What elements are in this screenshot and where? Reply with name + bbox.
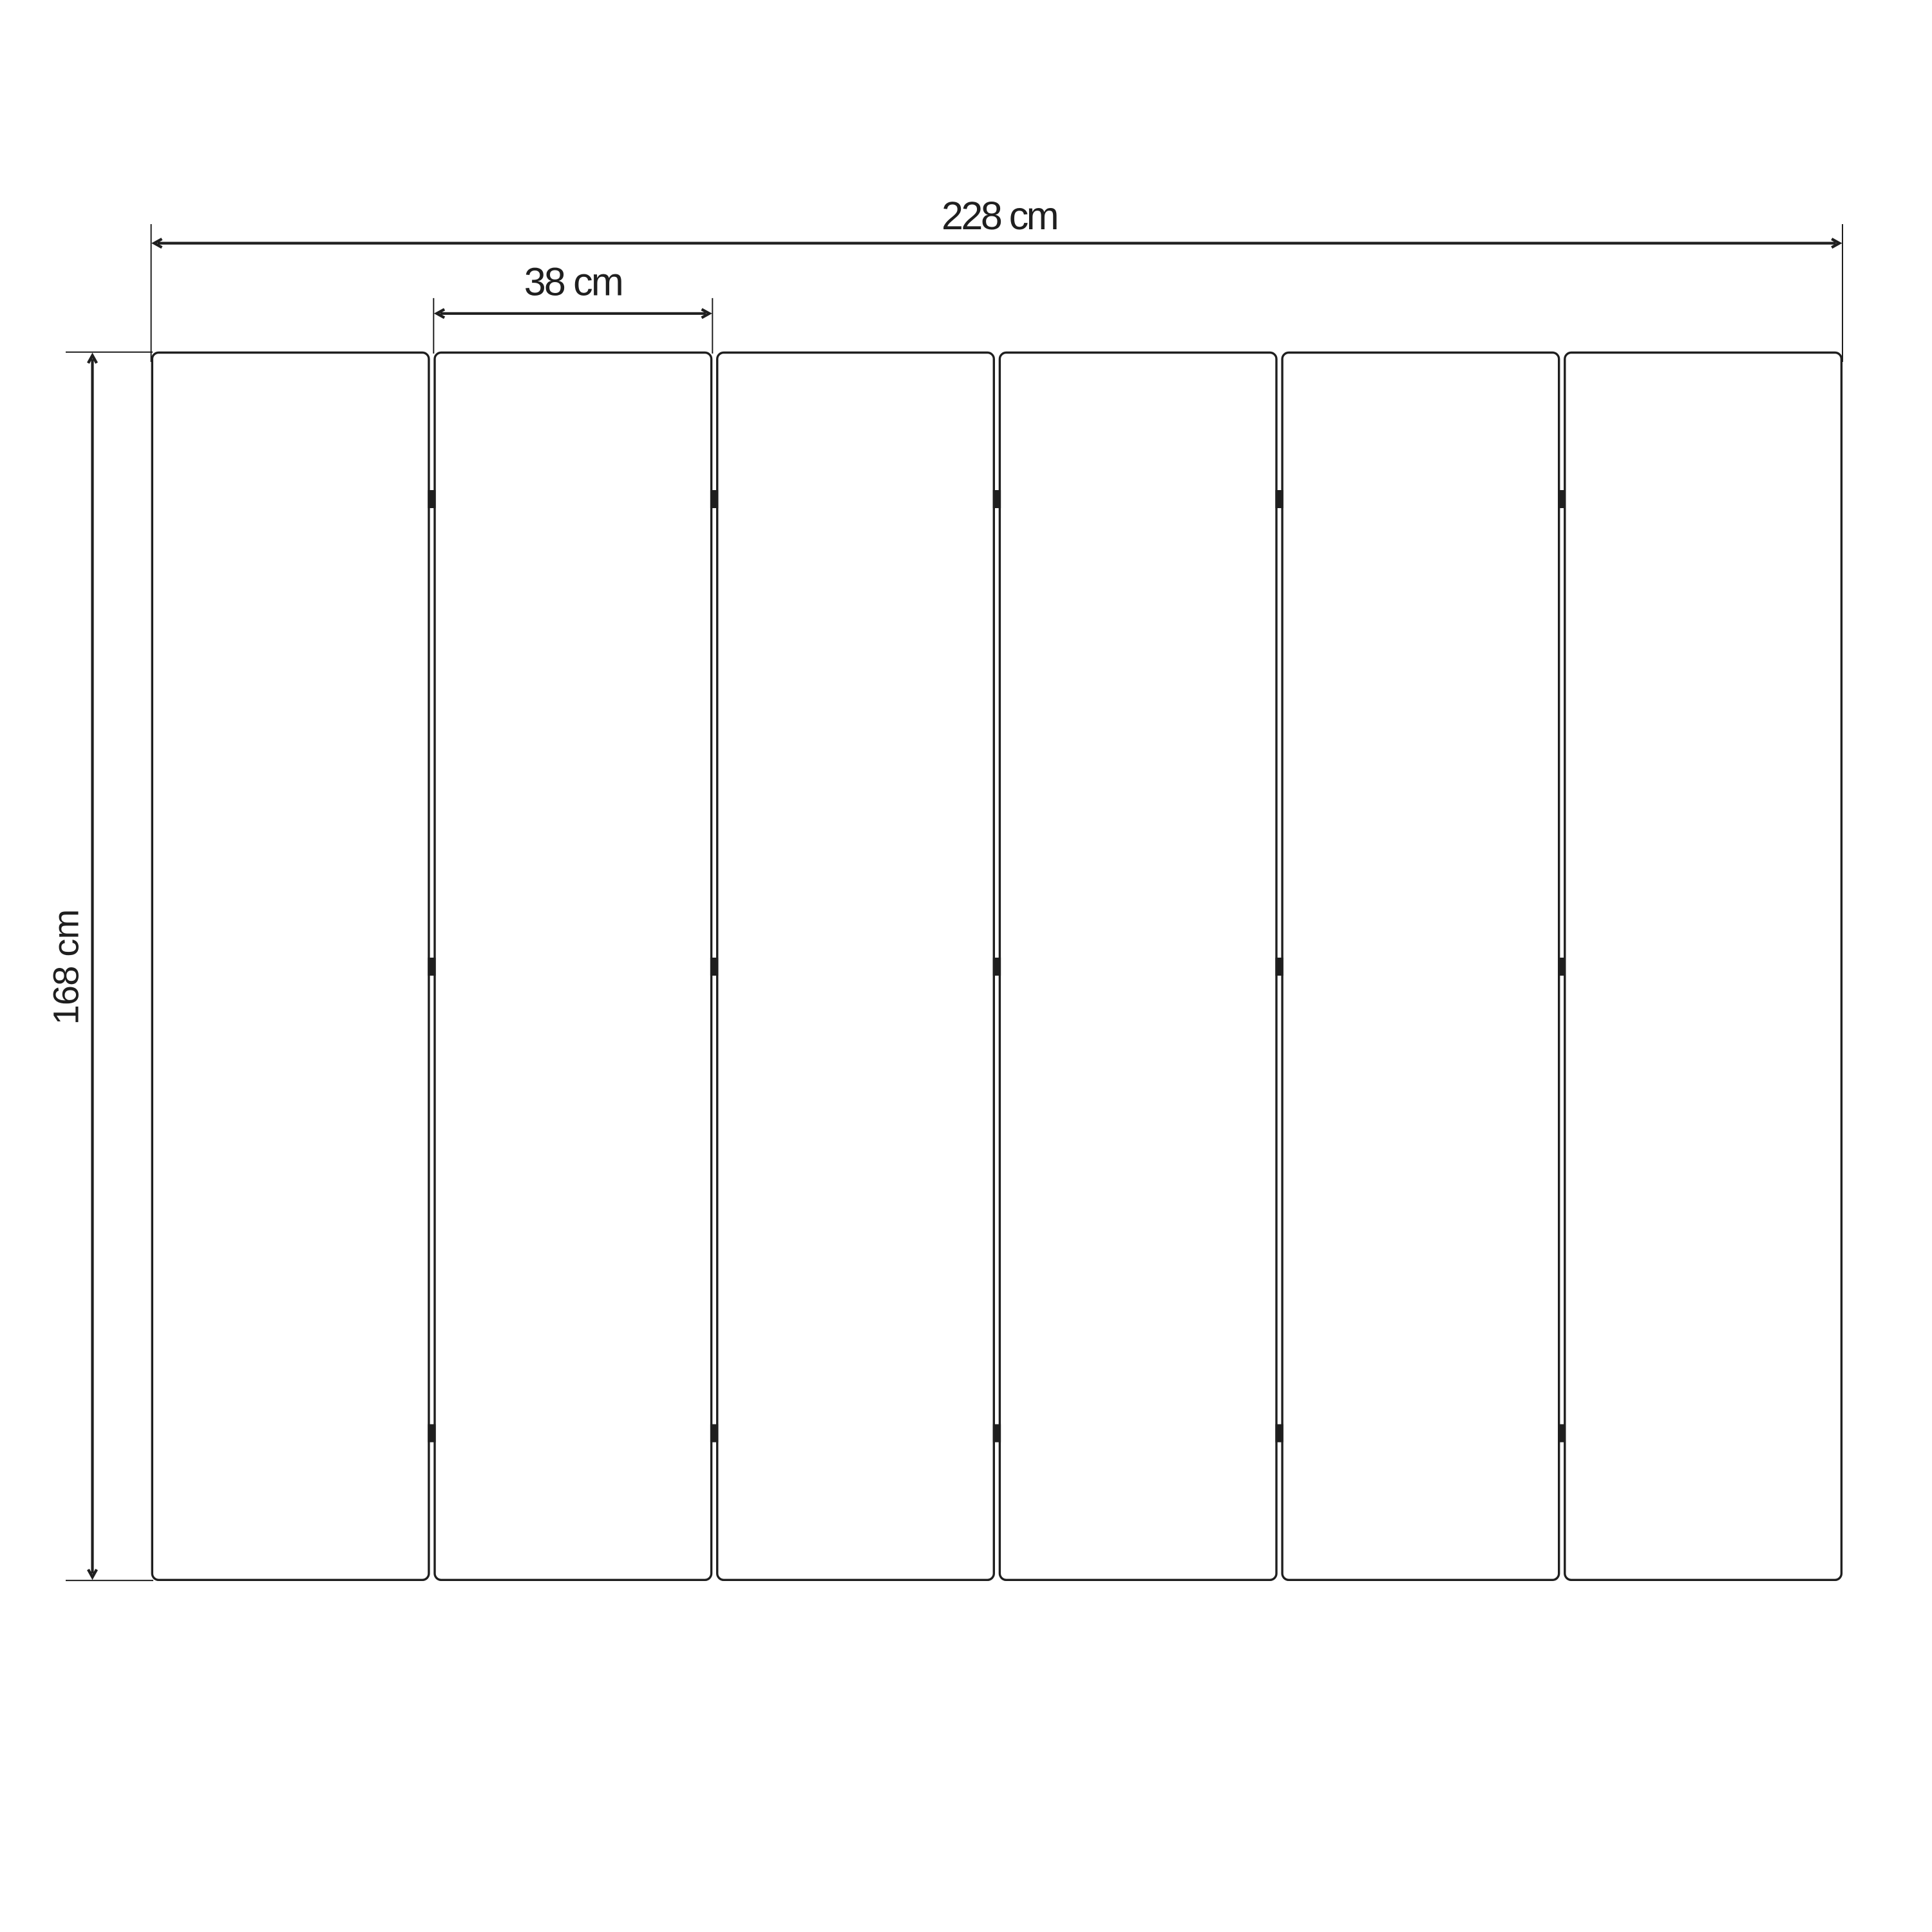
svg-text:38 cm: 38 cm [524,260,622,303]
svg-text:228 cm: 228 cm [942,194,1057,238]
svg-text:168 cm: 168 cm [46,910,86,1025]
